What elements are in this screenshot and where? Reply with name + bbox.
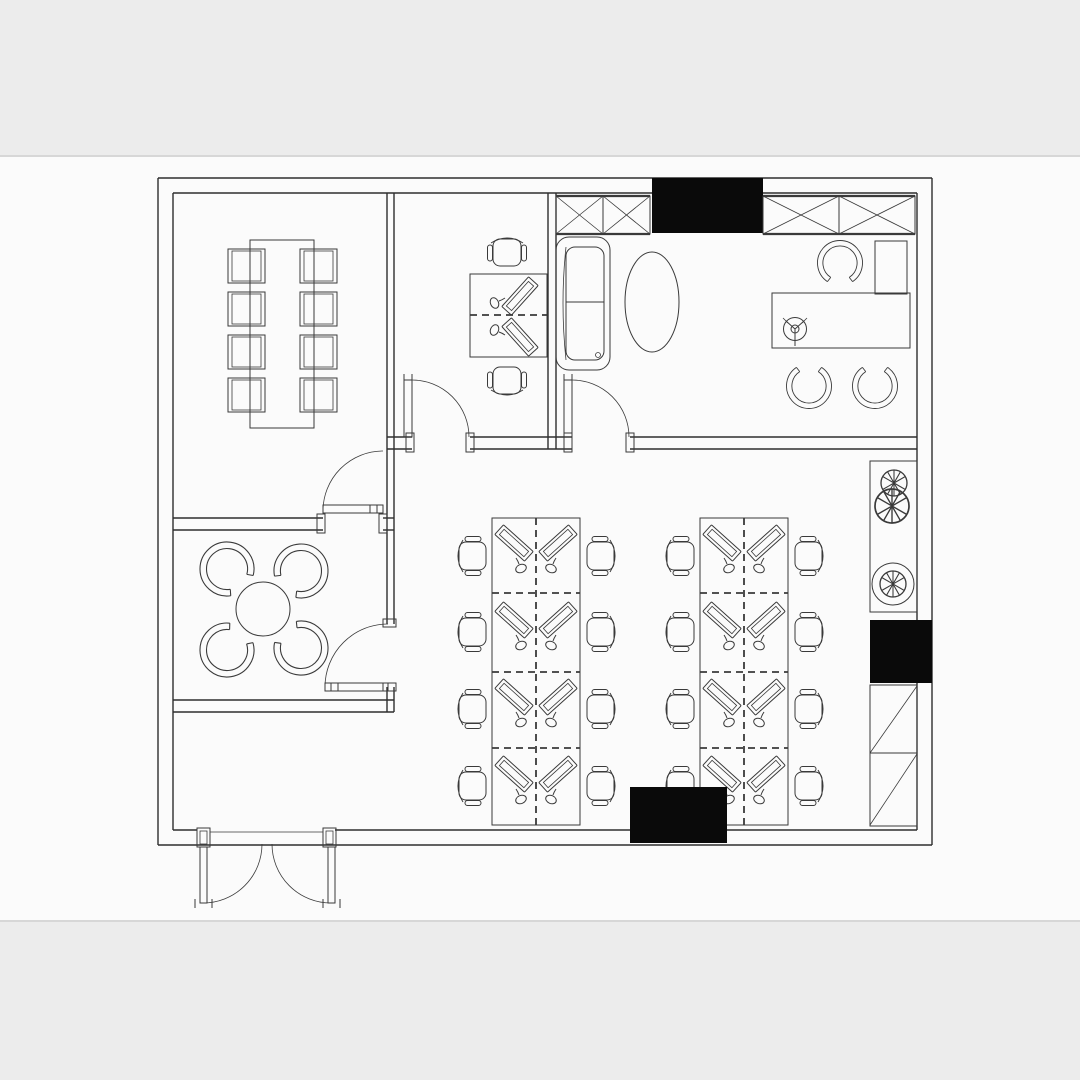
open-office-right-bank (666, 518, 823, 825)
task-chair (666, 690, 694, 729)
workstation-monitor (747, 756, 785, 806)
workstation-monitor (539, 525, 577, 575)
guest-chair (787, 367, 832, 408)
lounge-tub-chair (266, 613, 339, 686)
conference-room (228, 240, 337, 428)
right-wall-fixtures (870, 461, 932, 826)
conference-chair (300, 378, 337, 412)
interior-doors (323, 374, 629, 691)
lounge-door (325, 624, 388, 691)
workstation-monitor (495, 679, 533, 729)
task-chair (587, 767, 615, 806)
task-chair (795, 537, 823, 576)
executive-chair (818, 240, 863, 281)
solid-cabinet (652, 178, 763, 233)
task-chair (666, 613, 694, 652)
task-chair (666, 537, 694, 576)
executive-office-door (564, 374, 629, 437)
conference-chair (300, 292, 337, 326)
diagonal-shelving (870, 685, 917, 826)
task-chair (488, 367, 527, 395)
floor-plan-drawing (0, 0, 1080, 1080)
oval-coffee-table (625, 252, 679, 352)
open-office-left-bank (458, 518, 615, 825)
conference-chair (228, 292, 265, 326)
lounge-tub-chair (266, 533, 339, 606)
plant (875, 489, 909, 523)
conference-chair (300, 335, 337, 369)
walls (158, 178, 932, 845)
executive-office (556, 178, 915, 409)
solid-cabinet (630, 787, 727, 843)
workstation-monitor (747, 602, 785, 652)
x-shelving-unit (763, 196, 915, 234)
solid-cabinet (870, 620, 932, 683)
workstation-monitor (539, 602, 577, 652)
task-chair (488, 238, 527, 266)
conference-chair (228, 335, 265, 369)
lounge-tub-chair (189, 616, 262, 689)
task-chair (587, 537, 615, 576)
guest-chair (853, 367, 898, 408)
task-chair (458, 537, 486, 576)
desk-fan-symbol (783, 318, 807, 347)
conference-chair (228, 378, 265, 412)
workstation-monitor (703, 679, 741, 729)
workstation-monitor (747, 679, 785, 729)
workstation-monitor (489, 277, 539, 315)
workstation-monitor (489, 318, 539, 356)
task-chair (458, 690, 486, 729)
workstation-monitor (539, 679, 577, 729)
task-chair (587, 613, 615, 652)
workstation-monitor (747, 525, 785, 575)
potted-plant (872, 563, 914, 605)
lounge (189, 531, 339, 688)
lounge-round-table (236, 582, 290, 636)
task-chair (458, 767, 486, 806)
conference-room-door (323, 451, 383, 513)
side-cabinet (875, 241, 907, 294)
screenshot-canvas (0, 0, 1080, 1080)
workstation-monitor (495, 525, 533, 575)
workstation-monitor (539, 756, 577, 806)
task-chair (587, 690, 615, 729)
small-office (470, 238, 547, 395)
task-chair (458, 613, 486, 652)
executive-desk (772, 293, 910, 348)
workstation-monitor (703, 602, 741, 652)
conference-chair (228, 249, 265, 283)
lounge-tub-chair (189, 531, 262, 604)
conference-chair (300, 249, 337, 283)
entry-double-door (195, 828, 340, 908)
sofa (556, 237, 610, 370)
x-shelving-unit (556, 196, 650, 234)
workstation-monitor (495, 756, 533, 806)
task-chair (795, 613, 823, 652)
task-chair (795, 767, 823, 806)
workstation-monitor (495, 602, 533, 652)
workstation-monitor (703, 525, 741, 575)
task-chair (795, 690, 823, 729)
small-office-door (404, 374, 469, 437)
